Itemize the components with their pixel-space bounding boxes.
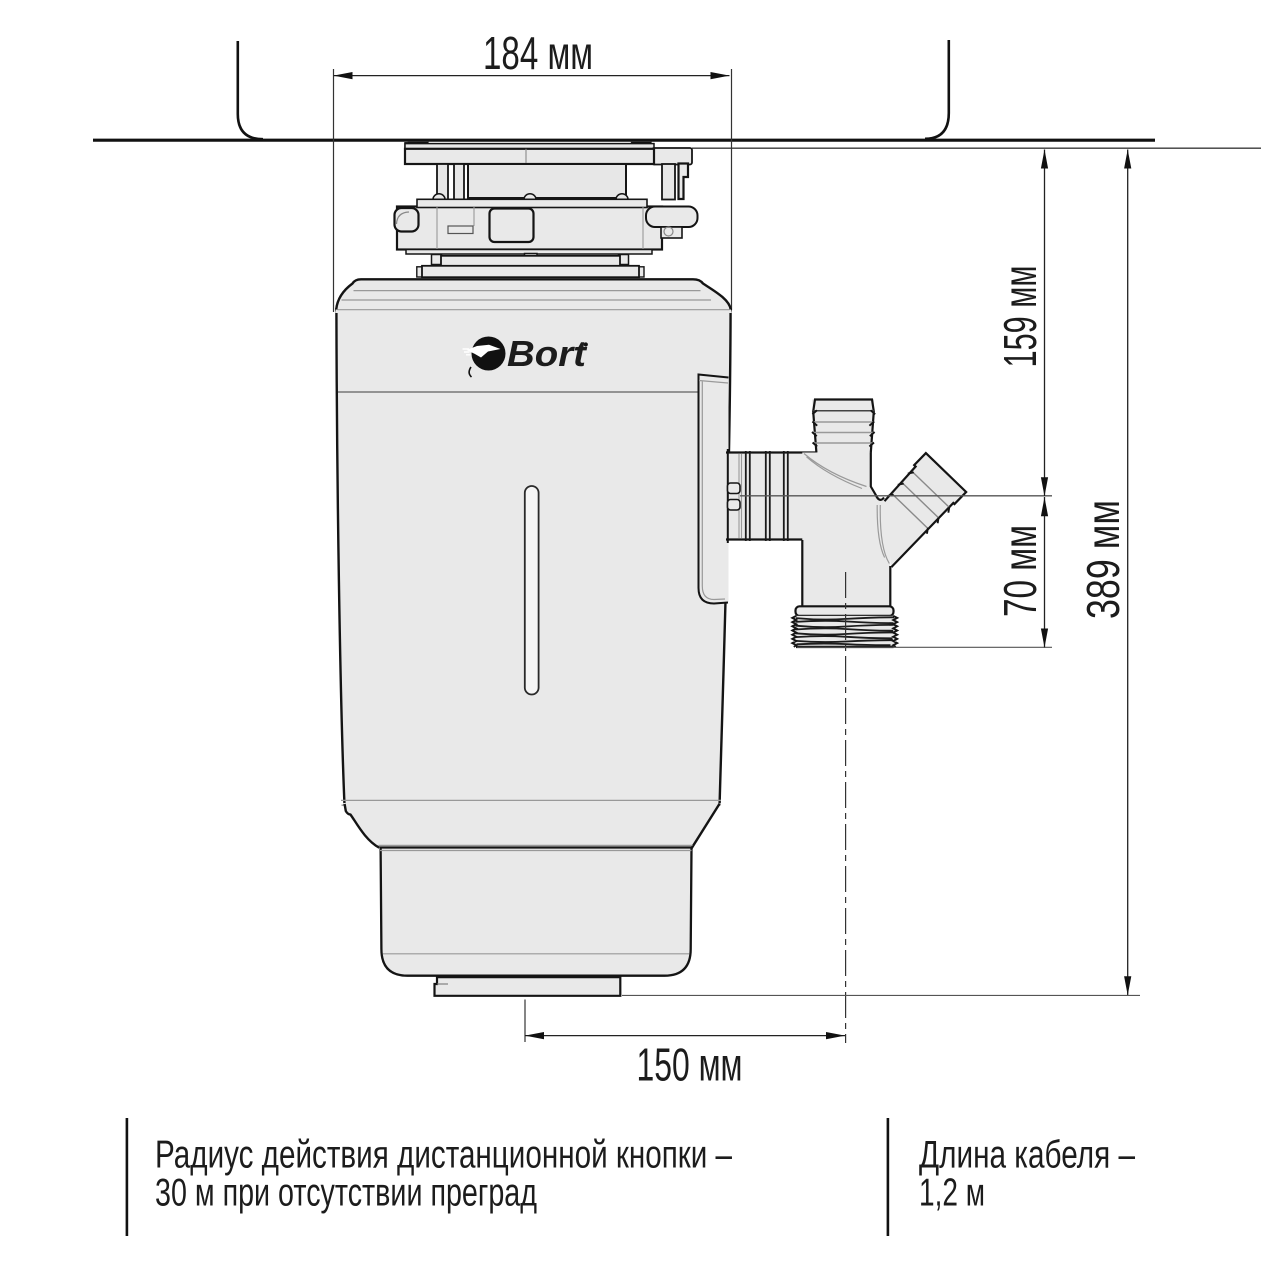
svg-text:184 мм: 184 мм (483, 27, 593, 79)
svg-text:Радиус действия дистанционной: Радиус действия дистанционной кнопки – (155, 1134, 732, 1177)
svg-text:159 мм: 159 мм (994, 266, 1046, 368)
svg-text:70 мм: 70 мм (994, 525, 1046, 617)
svg-text:150 мм: 150 мм (637, 1039, 743, 1091)
svg-text:1,2 м: 1,2 м (919, 1172, 985, 1215)
svg-text:Длина кабеля –: Длина кабеля – (919, 1134, 1135, 1177)
svg-text:389 мм: 389 мм (1077, 500, 1129, 619)
svg-text:30 м при отсутствии преград: 30 м при отсутствии преград (155, 1172, 537, 1215)
svg-text:Bort: Bort (507, 333, 588, 374)
